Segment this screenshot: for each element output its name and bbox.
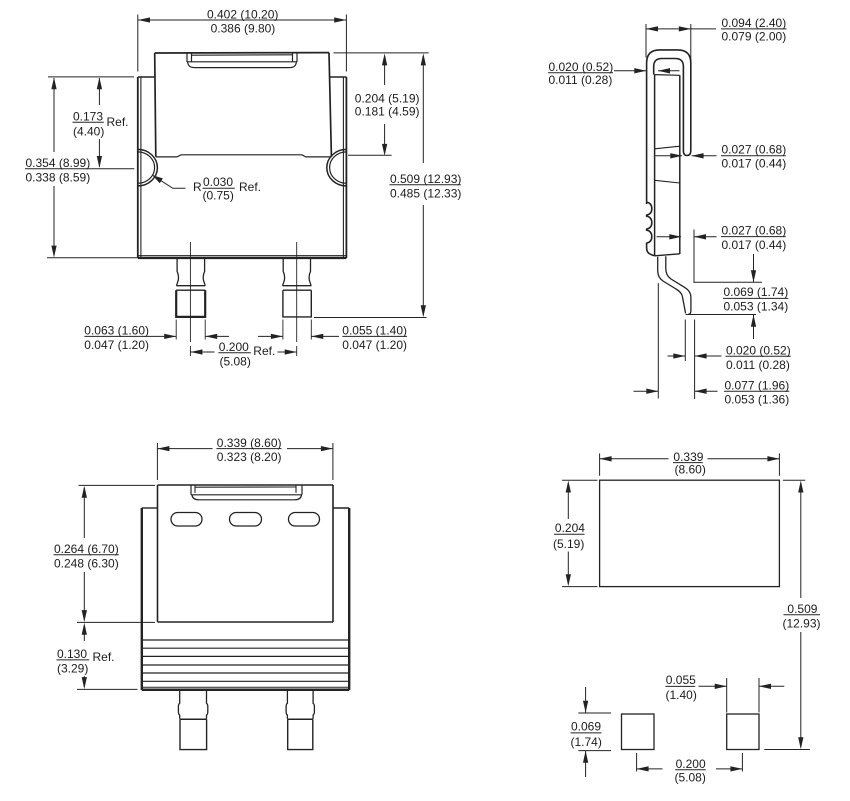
svg-text:0.386 (9.80): 0.386 (9.80) [211, 21, 276, 35]
svg-text:0.077 (1.96): 0.077 (1.96) [725, 378, 790, 392]
svg-text:0.053 (1.34): 0.053 (1.34) [724, 300, 789, 314]
svg-text:0.509: 0.509 [787, 602, 817, 616]
svg-text:(3.29): (3.29) [57, 661, 88, 675]
svg-text:0.323 (8.20): 0.323 (8.20) [217, 450, 282, 464]
svg-text:0.200: 0.200 [219, 340, 249, 354]
svg-text:0.200: 0.200 [676, 757, 706, 771]
svg-text:(4.40): (4.40) [73, 124, 104, 138]
svg-text:0.027 (0.68): 0.027 (0.68) [722, 224, 787, 238]
svg-text:Ref.: Ref. [93, 650, 115, 664]
svg-text:(8.60): (8.60) [675, 463, 706, 477]
svg-text:Ref.: Ref. [107, 115, 129, 129]
svg-text:0.181 (4.59): 0.181 (4.59) [355, 105, 420, 119]
svg-text:0.339 (8.60): 0.339 (8.60) [217, 436, 282, 450]
svg-text:0.055 (1.40): 0.055 (1.40) [342, 324, 407, 338]
svg-text:(5.08): (5.08) [675, 771, 706, 785]
svg-text:0.248 (6.30): 0.248 (6.30) [54, 556, 119, 570]
svg-text:0.509 (12.93): 0.509 (12.93) [390, 172, 461, 186]
svg-text:(5.08): (5.08) [220, 355, 251, 369]
svg-text:0.011 (0.28): 0.011 (0.28) [549, 73, 613, 87]
svg-text:0.047 (1.20): 0.047 (1.20) [84, 338, 149, 352]
svg-text:0.017 (0.44): 0.017 (0.44) [722, 238, 787, 252]
svg-text:(1.74): (1.74) [571, 735, 602, 749]
svg-text:Ref.: Ref. [253, 344, 275, 358]
svg-text:0.027 (0.68): 0.027 (0.68) [722, 143, 787, 157]
svg-text:(5.19): (5.19) [553, 537, 584, 551]
svg-text:0.130: 0.130 [57, 647, 87, 661]
svg-text:(12.93): (12.93) [783, 617, 821, 631]
svg-text:0.047 (1.20): 0.047 (1.20) [342, 338, 407, 352]
svg-text:0.264 (6.70): 0.264 (6.70) [54, 542, 119, 556]
svg-text:0.055: 0.055 [666, 673, 696, 687]
svg-text:(0.75): (0.75) [203, 189, 234, 203]
svg-text:0.204: 0.204 [555, 521, 585, 535]
svg-text:0.094 (2.40): 0.094 (2.40) [722, 16, 787, 30]
svg-text:0.079 (2.00): 0.079 (2.00) [722, 30, 787, 44]
svg-text:0.017 (0.44): 0.017 (0.44) [722, 157, 787, 171]
svg-text:0.485 (12.33): 0.485 (12.33) [390, 187, 461, 201]
svg-text:0.069: 0.069 [571, 720, 601, 734]
svg-text:Ref.: Ref. [239, 180, 261, 194]
svg-text:(1.40): (1.40) [666, 688, 697, 702]
svg-text:0.053 (1.36): 0.053 (1.36) [725, 392, 790, 406]
svg-text:0.020 (0.52): 0.020 (0.52) [549, 60, 614, 74]
svg-text:0.204 (5.19): 0.204 (5.19) [355, 91, 420, 105]
svg-text:0.063 (1.60): 0.063 (1.60) [84, 324, 149, 338]
svg-text:0.173: 0.173 [73, 110, 103, 124]
svg-text:0.402 (10.20): 0.402 (10.20) [207, 7, 278, 21]
svg-text:0.030: 0.030 [203, 175, 233, 189]
svg-text:0.069 (1.74): 0.069 (1.74) [724, 285, 789, 299]
svg-text:R: R [193, 180, 202, 194]
svg-text:0.020 (0.52): 0.020 (0.52) [726, 344, 791, 358]
svg-text:0.338 (8.59): 0.338 (8.59) [26, 170, 91, 184]
svg-text:0.011 (0.28): 0.011 (0.28) [726, 358, 790, 372]
svg-text:0.354 (8.99): 0.354 (8.99) [26, 156, 91, 170]
